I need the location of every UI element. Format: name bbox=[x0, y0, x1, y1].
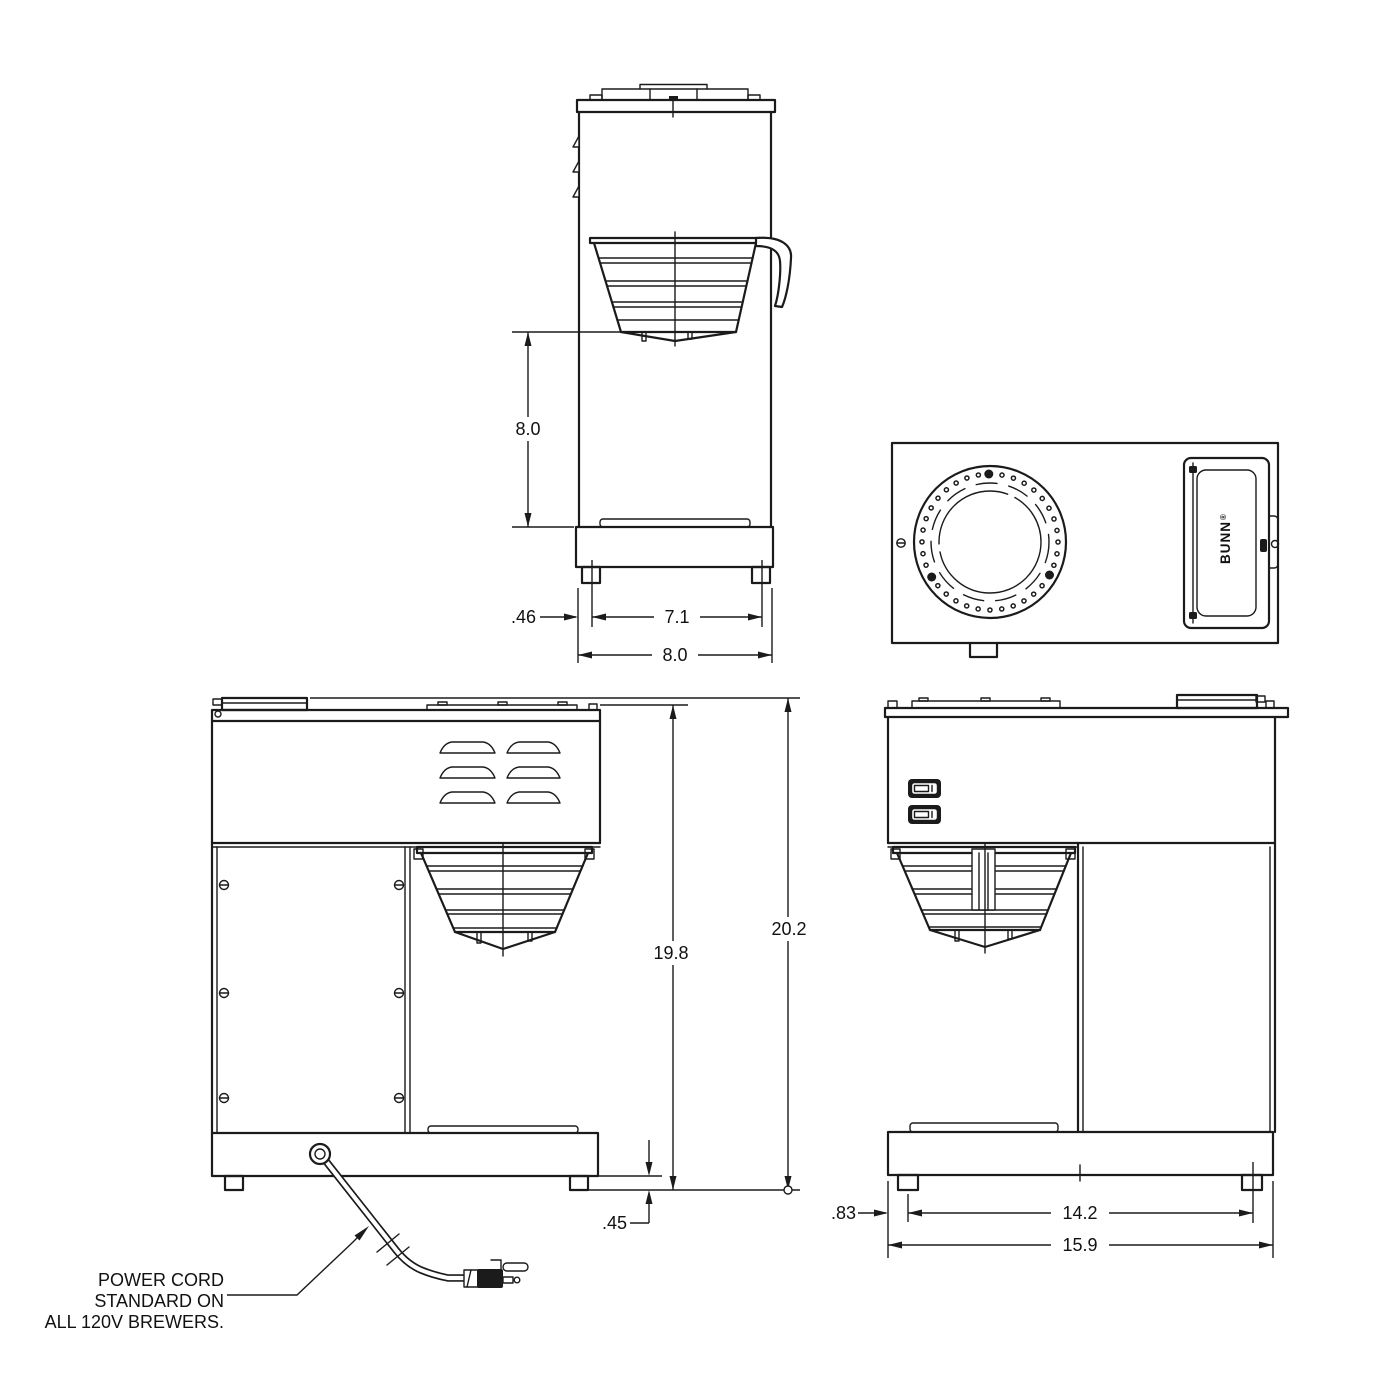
dim-body-height: 19.8 bbox=[642, 705, 700, 1190]
spec-sheet-page: 8.0 .46 7.1 8.0 bbox=[0, 0, 1400, 1400]
front-view bbox=[573, 85, 791, 584]
foot bbox=[898, 1175, 918, 1190]
vent-louvers bbox=[440, 742, 560, 803]
sprayhead-dome bbox=[914, 466, 1066, 618]
base-front bbox=[576, 519, 773, 583]
right-side-view bbox=[885, 695, 1288, 1190]
top-view: BUNN® bbox=[892, 443, 1279, 657]
foot bbox=[570, 1176, 588, 1190]
dim-label-overall-width-front: 8.0 bbox=[662, 645, 687, 665]
dim-overall-height: 20.2 bbox=[760, 698, 818, 1194]
dim-label-body-height: 19.8 bbox=[653, 943, 688, 963]
power-plug bbox=[464, 1260, 528, 1288]
foot bbox=[225, 1176, 243, 1190]
latch-tab bbox=[1269, 516, 1278, 568]
top-band-side-right bbox=[885, 708, 1288, 717]
power-cord-callout: POWER CORD STANDARD ON ALL 120V BREWERS. bbox=[45, 1226, 369, 1332]
left-side-view: POWER CORD STANDARD ON ALL 120V BREWERS. bbox=[45, 698, 600, 1332]
funnel-rail-tab bbox=[970, 643, 997, 657]
dim-label-foot-inset-side: .83 bbox=[831, 1203, 856, 1223]
base-right bbox=[888, 1123, 1273, 1190]
funnel-handle bbox=[756, 238, 791, 307]
brew-funnel-front bbox=[590, 232, 791, 346]
top-band-front bbox=[577, 100, 775, 112]
front-view-dimensions: 8.0 .46 7.1 8.0 bbox=[506, 332, 772, 666]
cord-grommet bbox=[310, 1144, 330, 1164]
lid-side-right bbox=[1177, 695, 1265, 708]
screw bbox=[1045, 571, 1054, 580]
lid-side bbox=[213, 698, 307, 717]
funnel-handle-end bbox=[972, 849, 995, 910]
foot bbox=[582, 567, 600, 583]
dim-foot-inset-front: .46 bbox=[511, 607, 578, 627]
dim-feet-span-side: 14.2 bbox=[908, 1201, 1253, 1225]
dim-label-overall-height: 20.2 bbox=[771, 919, 806, 939]
dim-label-foot-inset-front: .46 bbox=[511, 607, 536, 627]
tank-lid-door: BUNN® bbox=[1184, 458, 1279, 628]
screw bbox=[984, 470, 993, 479]
dim-label-feet-span-side: 14.2 bbox=[1062, 1203, 1097, 1223]
warmer-plate-top-right bbox=[912, 698, 1060, 708]
dim-label-foot-height: .45 bbox=[602, 1213, 627, 1233]
dim-label-feet-span-front: 7.1 bbox=[664, 607, 689, 627]
technical-drawing: 8.0 .46 7.1 8.0 bbox=[0, 0, 1400, 1400]
bunn-logo: BUNN® bbox=[1218, 513, 1233, 564]
dim-foot-inset-side: .83 bbox=[831, 1203, 888, 1223]
dim-feet-span-front: 7.1 bbox=[592, 606, 762, 628]
screw bbox=[897, 539, 905, 547]
brew-funnel-right bbox=[891, 843, 1075, 953]
note-line-2: STANDARD ON bbox=[94, 1291, 224, 1311]
base-side bbox=[212, 1126, 598, 1190]
note-line-1: POWER CORD bbox=[98, 1270, 224, 1290]
panel-screws bbox=[220, 881, 404, 1103]
drip-tray-front bbox=[600, 519, 750, 527]
drip-tray-right bbox=[910, 1123, 1058, 1132]
dim-overall-depth: 15.9 bbox=[888, 1233, 1273, 1257]
side-view-dimensions: 19.8 20.2 .45 bbox=[310, 698, 818, 1233]
upper-warmer-switch[interactable] bbox=[908, 779, 941, 798]
screw bbox=[927, 573, 936, 582]
latch-slot bbox=[1260, 539, 1267, 552]
dim-funnel-to-base: 8.0 bbox=[506, 332, 646, 527]
dim-foot-height: .45 bbox=[602, 1140, 653, 1233]
rocker-switches bbox=[908, 779, 941, 824]
note-line-3: ALL 120V BREWERS. bbox=[45, 1312, 224, 1332]
foot bbox=[1242, 1175, 1262, 1190]
side-tabs bbox=[573, 136, 579, 197]
top-band-side bbox=[212, 710, 600, 721]
dim-label-overall-depth: 15.9 bbox=[1062, 1235, 1097, 1255]
foot bbox=[752, 567, 770, 583]
warmer-plate-top bbox=[427, 702, 577, 710]
dim-overall-width-front: 8.0 bbox=[578, 644, 772, 666]
brew-switch[interactable] bbox=[908, 805, 941, 824]
power-cord bbox=[310, 1144, 528, 1288]
brew-funnel-side bbox=[414, 843, 594, 956]
dim-label-front-height: 8.0 bbox=[515, 419, 540, 439]
